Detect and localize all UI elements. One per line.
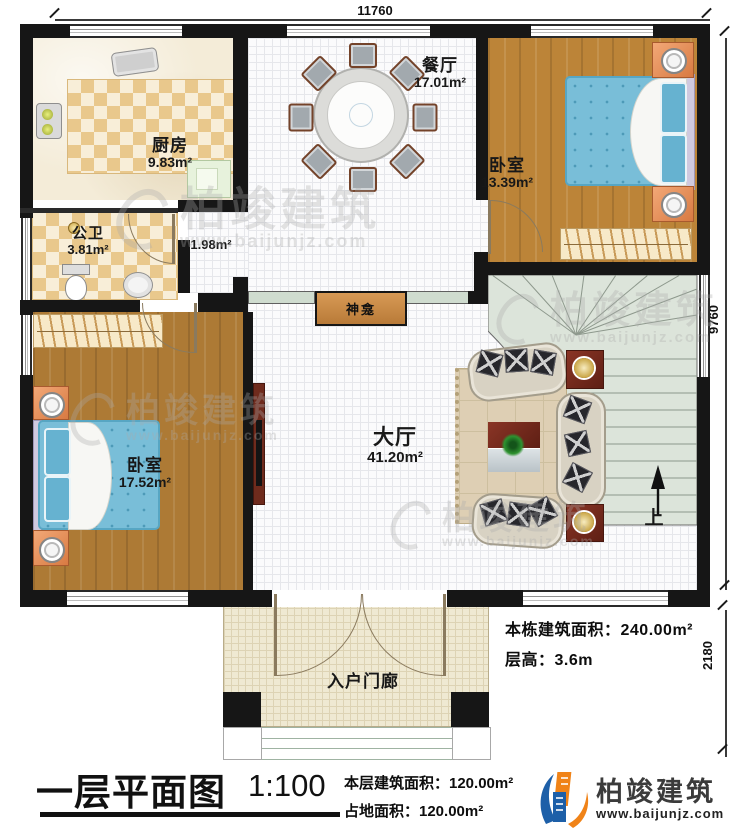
- bed-pillow: [44, 476, 71, 522]
- entry-door-leaf: [443, 594, 446, 676]
- wall: [233, 277, 248, 312]
- room-label-porch: 入户门廊: [298, 672, 428, 691]
- dimension-line-top: [55, 19, 710, 21]
- room-label-bedroom-right: 卧室13.39m²: [452, 156, 562, 191]
- dining-chair: [349, 43, 377, 68]
- wall: [447, 590, 523, 607]
- ground-area-text: 占地面积：120.00m²: [344, 800, 539, 821]
- room-label-hallway: 1.98m²: [183, 238, 239, 253]
- bed-pillow: [660, 134, 687, 184]
- dimension-tick: [49, 8, 60, 19]
- nightstand-lamp: [39, 392, 65, 418]
- floor-area-text: 本层建筑面积：120.00m²: [344, 772, 539, 793]
- wall: [20, 375, 33, 590]
- toilet-bowl: [65, 275, 87, 301]
- closet-rod: [564, 244, 689, 245]
- window: [67, 590, 188, 607]
- closet: [33, 314, 163, 348]
- dimension-tick: [719, 26, 730, 37]
- tv: [256, 420, 262, 486]
- title-underline: [40, 812, 340, 817]
- dining-chair: [413, 104, 438, 132]
- wall: [20, 24, 33, 218]
- page-title: 一层平面图: [36, 762, 261, 816]
- dimension-line-right-lower: [725, 610, 727, 757]
- wall: [488, 262, 710, 275]
- shrine-label: 神龛: [346, 299, 376, 318]
- wall: [468, 291, 478, 304]
- dimension-tick: [701, 8, 712, 19]
- stove-burner: [42, 109, 53, 120]
- window: [287, 24, 430, 38]
- porch-post: [223, 692, 261, 727]
- brand-company: 柏竣建筑: [596, 770, 746, 809]
- note-building-area: 本栋建筑面积：240.00m²: [505, 616, 720, 640]
- nightstand-lamp: [661, 192, 687, 218]
- porch-post: [451, 692, 489, 727]
- dining-table-center: [349, 103, 373, 127]
- wall: [188, 590, 272, 607]
- brand-website: www.baijunjz.com: [596, 806, 746, 821]
- porch-side-base: [223, 727, 262, 760]
- floor-plan-sheet: 11760 9760 2180: [0, 0, 750, 840]
- stairs-up-label: 上: [640, 508, 668, 529]
- dining-chair: [349, 167, 377, 192]
- room-label-dining: 餐厅17.01m²: [392, 56, 488, 91]
- half-wall: [403, 291, 470, 304]
- shrine-cabinet: 神龛: [315, 291, 407, 326]
- closet-rod: [37, 331, 160, 332]
- wall: [20, 300, 140, 312]
- stove-burner: [42, 124, 53, 135]
- room-label-bathroom: 公卫3.81m²: [38, 226, 138, 257]
- window: [21, 218, 32, 300]
- room-label-living: 大厅41.20m²: [340, 426, 450, 466]
- nightstand-lamp: [39, 537, 65, 563]
- wall: [668, 590, 710, 607]
- wall: [697, 24, 710, 270]
- wall-thin: [20, 208, 178, 213]
- wall: [233, 38, 248, 200]
- wall: [182, 24, 287, 38]
- brand-logo-icon: [536, 766, 590, 830]
- side-table-lamp: [574, 358, 594, 378]
- wall: [20, 590, 67, 607]
- sofa-cushion: [504, 348, 529, 373]
- plan-scale: 1:100: [248, 768, 340, 804]
- window: [70, 24, 182, 38]
- note-floor-height: 层高：3.6m: [505, 646, 720, 670]
- bed-pillow: [44, 428, 71, 476]
- window: [531, 24, 653, 38]
- sofa-cushion: [530, 349, 557, 376]
- kitchen-cabinet-top: [196, 168, 218, 190]
- toilet: [62, 264, 90, 275]
- nightstand-lamp: [661, 48, 687, 74]
- potted-plant: [500, 432, 526, 458]
- window: [523, 590, 668, 607]
- porch-side-base: [452, 727, 491, 760]
- door-leaf: [194, 303, 197, 353]
- bed-pillow: [660, 82, 687, 134]
- dimension-line-right-upper: [725, 38, 727, 590]
- room-label-kitchen: 厨房9.83m²: [115, 136, 225, 171]
- sofa-cushion: [564, 430, 591, 457]
- side-table-lamp: [574, 512, 594, 532]
- wall: [178, 200, 248, 212]
- half-wall: [248, 291, 315, 304]
- window: [21, 315, 32, 375]
- wall: [430, 24, 531, 38]
- wall: [697, 377, 710, 590]
- closet: [560, 228, 692, 260]
- wall: [243, 312, 253, 590]
- dimension-top: 11760: [325, 3, 425, 18]
- window: [699, 270, 710, 377]
- dining-chair: [289, 104, 314, 132]
- room-label-bedroom-left: 卧室17.52m²: [95, 456, 195, 491]
- dimension-tick: [717, 600, 728, 611]
- wash-basin: [123, 272, 153, 298]
- porch-steps: [261, 727, 453, 760]
